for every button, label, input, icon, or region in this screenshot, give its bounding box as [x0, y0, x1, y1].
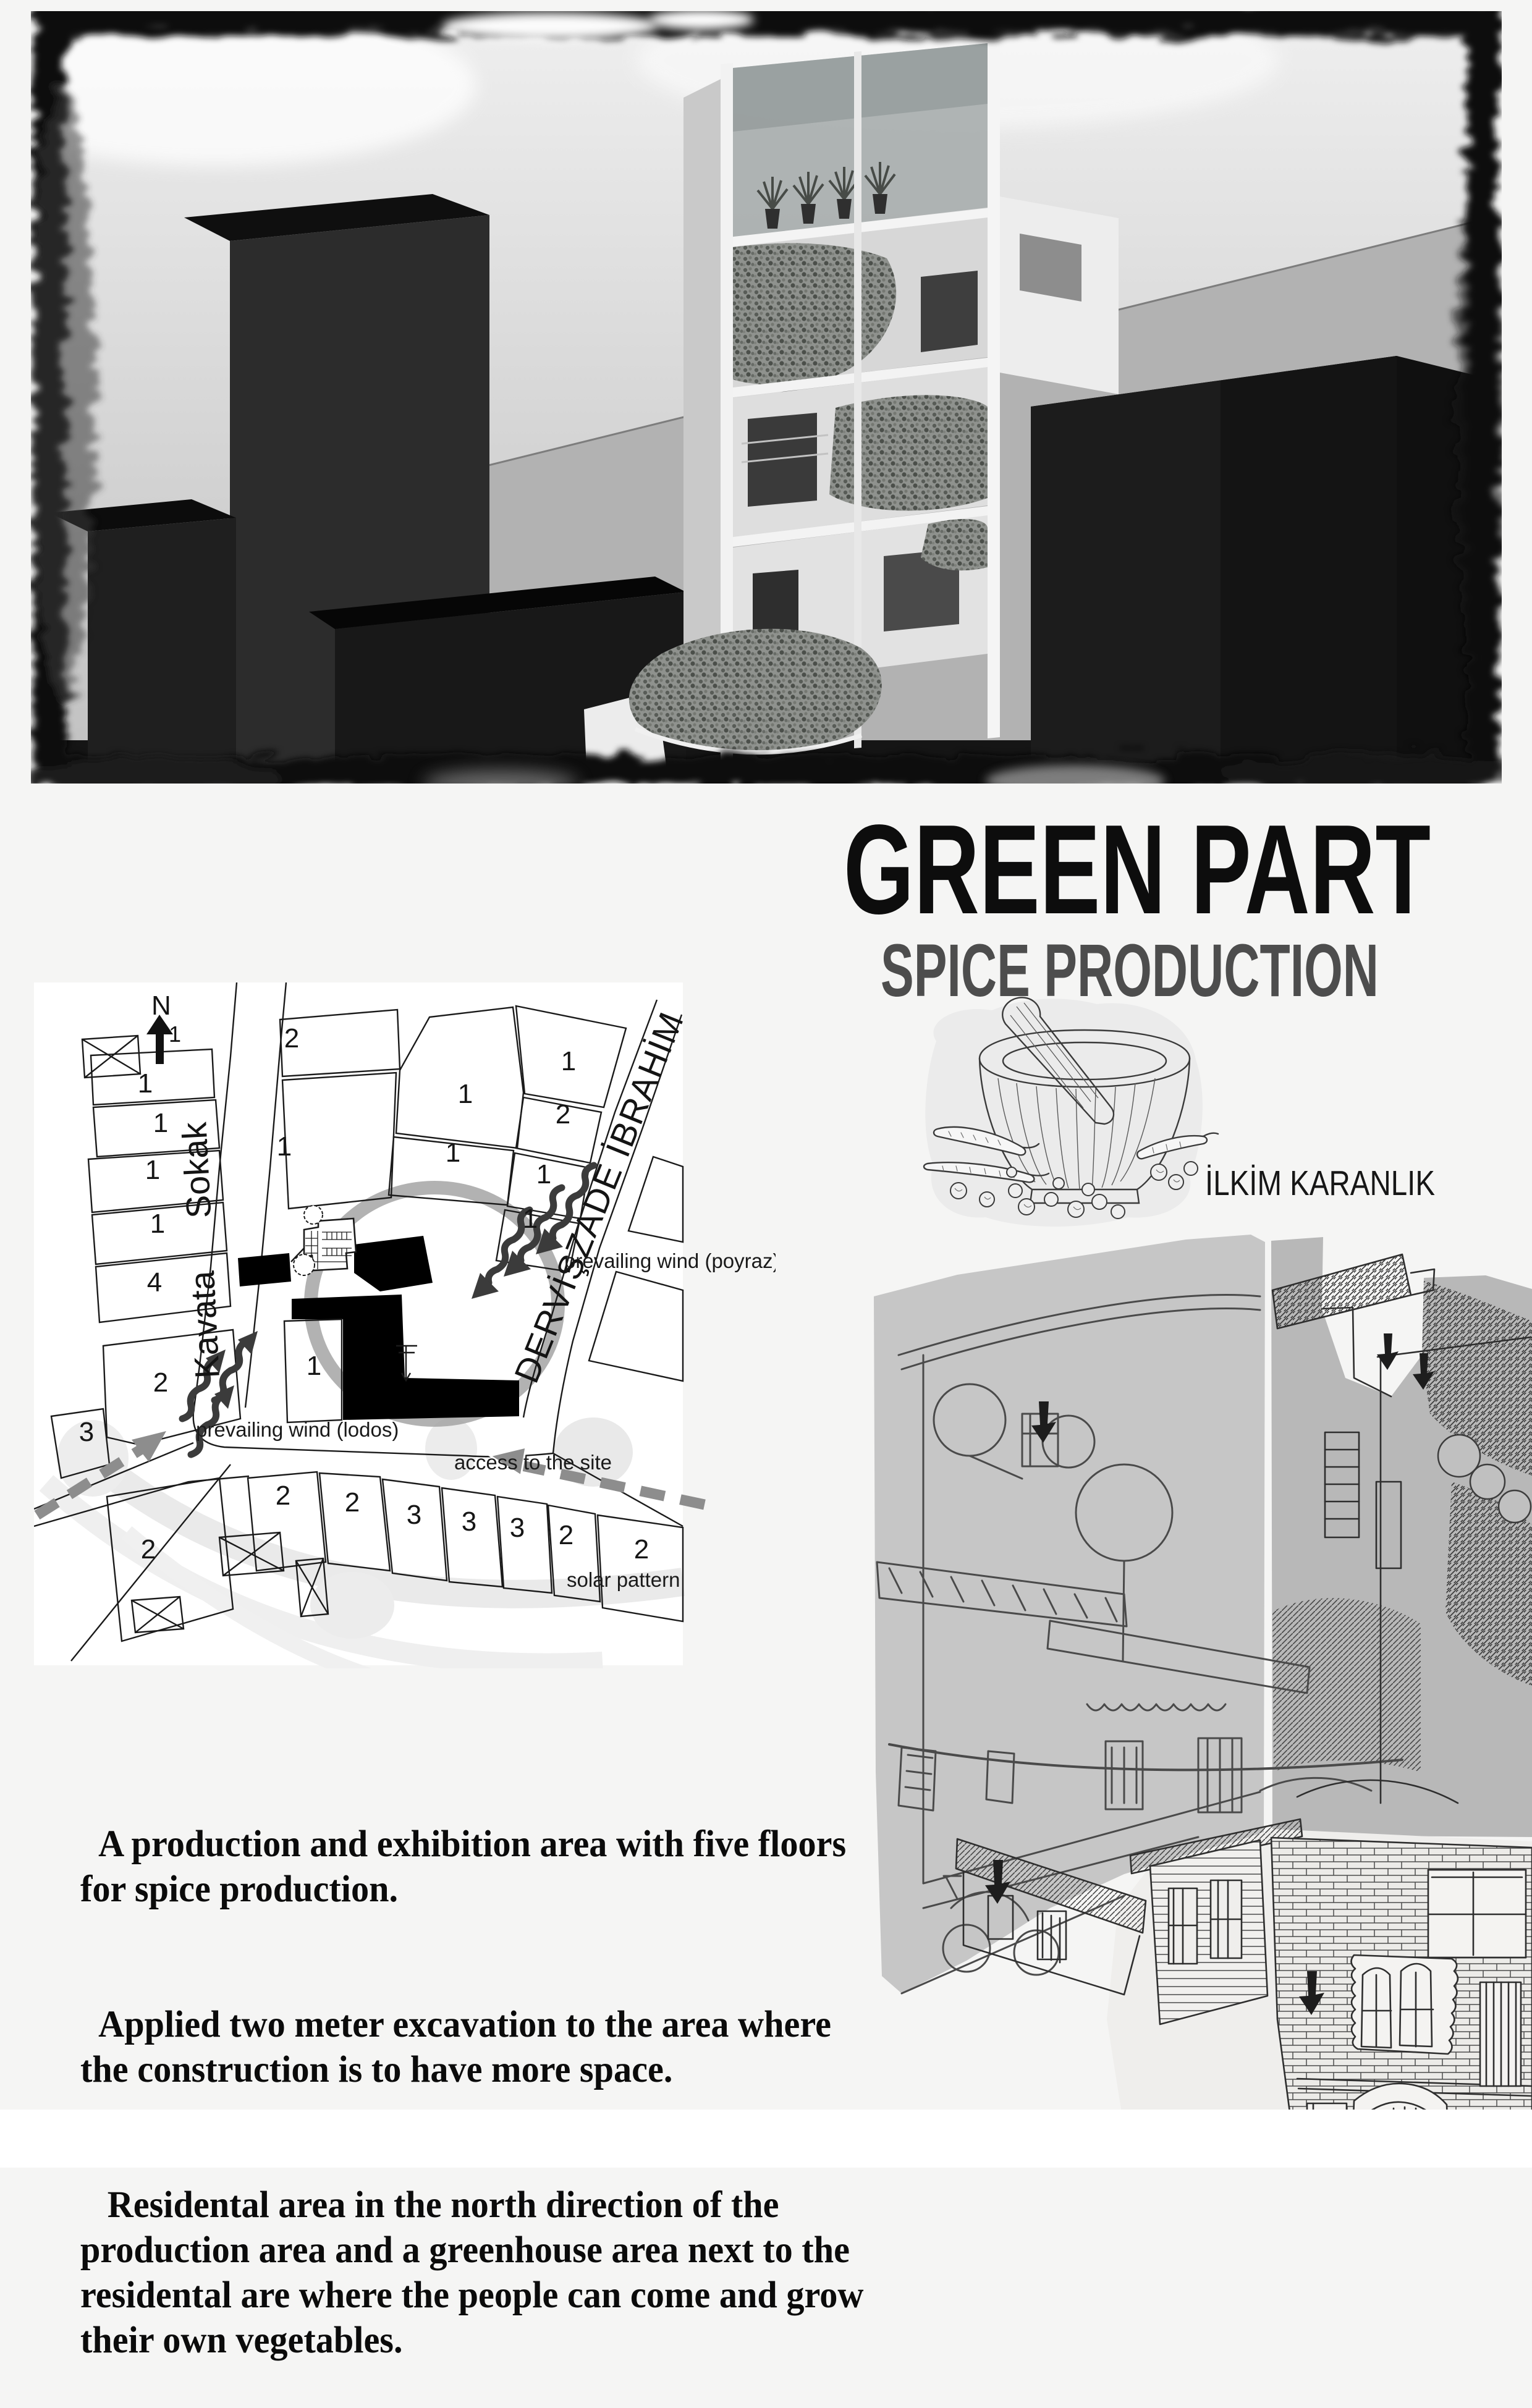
description-paragraph-1: A production and exhibition area with fi… [80, 1822, 871, 1912]
parcel-number: 2 [276, 1481, 290, 1511]
parcel-number: 1 [561, 1046, 576, 1076]
parcel-number: 1 [153, 1108, 168, 1138]
parcel-number: 3 [407, 1500, 421, 1530]
parcel-number: 1 [523, 1204, 538, 1234]
parcel-number: 2 [345, 1487, 360, 1518]
render-3d-panel [31, 11, 1502, 784]
parcel-number: 3 [462, 1506, 476, 1537]
page-title: GREEN PART [844, 798, 1431, 940]
parcel-number: 3 [510, 1513, 525, 1543]
mortar-and-pestle-icon [899, 986, 1221, 1233]
parcel-number: 2 [284, 1023, 299, 1054]
description-text: A production and exhibition area with fi… [80, 1731, 871, 2408]
parcel-number: 1 [458, 1079, 473, 1109]
parcel-number: 1 [145, 1155, 160, 1185]
poster-page: { "page": {"background": "#f5f5f4", "acc… [0, 0, 1532, 2168]
parcel-number: 1 [307, 1351, 321, 1381]
parcel-number: 2 [559, 1520, 573, 1550]
access-label: access to the site [454, 1451, 612, 1474]
description-paragraph-2: Applied two meter excavation to the area… [80, 2002, 871, 2092]
dark-buildings-right [1031, 356, 1502, 784]
parcel-number: 2 [634, 1534, 649, 1565]
parcel-number: 1 [446, 1138, 460, 1168]
sketches-panel [865, 1216, 1532, 2168]
solar-label: solar pattern [567, 1568, 680, 1591]
wind-label-lodos: prevailing wind (lodos) [196, 1418, 399, 1441]
site-plan-map: N 1 Kavata Sokak DERVİŞZADE İBRAHİM prev… [34, 982, 776, 1668]
bottom-margin [0, 2110, 1532, 2168]
parcel-number: 1 [277, 1131, 292, 1162]
parcel-number: 4 [147, 1267, 162, 1298]
paper-gap [442, 12, 658, 40]
parcel-number: 1 [536, 1159, 551, 1189]
parcel-number: 3 [79, 1417, 94, 1447]
parcel-number: 2 [141, 1534, 156, 1565]
render-scene [31, 11, 1502, 784]
wind-label-poyraz: prevailing wind (poyraz) [564, 1249, 776, 1272]
north-label: N [151, 991, 171, 1021]
description-paragraph-3: Residental area in the north direction o… [80, 2182, 871, 2363]
author-name: İLKİM KARANLIK [1205, 1164, 1435, 1203]
parcel-number: 1 [150, 1209, 165, 1239]
parcel-number: 2 [153, 1367, 168, 1398]
parcel-number: 1 [138, 1068, 153, 1099]
parcel-number: 2 [556, 1099, 570, 1130]
